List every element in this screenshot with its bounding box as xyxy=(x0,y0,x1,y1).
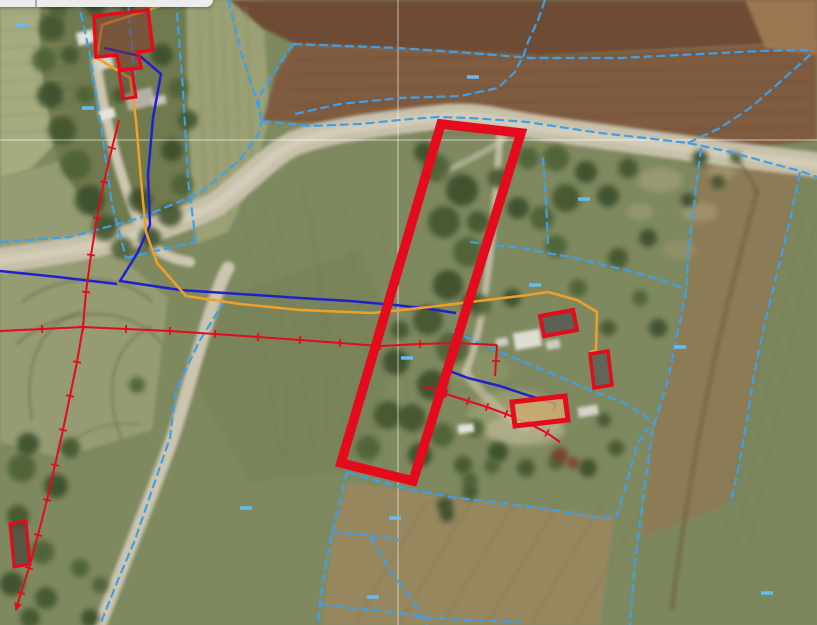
tree-canopy xyxy=(608,248,628,268)
red-bush xyxy=(552,447,568,463)
tree-canopy xyxy=(600,320,616,336)
map-canvas[interactable] xyxy=(0,0,817,625)
aerial-ground-patch xyxy=(626,204,654,220)
building-outline[interactable] xyxy=(540,310,577,336)
tree-canopy xyxy=(618,158,638,178)
tree-canopy xyxy=(398,404,426,432)
tree-canopy xyxy=(552,184,580,212)
tree-canopy xyxy=(32,48,56,72)
building-outline[interactable] xyxy=(512,396,568,426)
toolbar-fragment[interactable] xyxy=(0,0,213,7)
aerial-ground-patch xyxy=(638,168,682,192)
tree-canopy xyxy=(484,458,500,474)
building-outline[interactable] xyxy=(119,69,136,99)
tree-canopy xyxy=(61,150,91,180)
tree-canopy xyxy=(711,175,725,189)
tree-canopy xyxy=(8,454,36,482)
tree-canopy xyxy=(129,377,145,393)
tree-canopy xyxy=(92,577,108,593)
tree-canopy xyxy=(383,349,409,375)
tree-canopy xyxy=(35,587,57,609)
building-outline[interactable] xyxy=(590,351,612,388)
tree-canopy xyxy=(649,319,667,337)
tree-canopy xyxy=(454,456,472,474)
tree-canopy xyxy=(507,197,529,219)
tree-canopy xyxy=(61,46,79,64)
tree-canopy xyxy=(608,440,624,456)
tree-canopy xyxy=(440,508,454,522)
tree-canopy xyxy=(161,139,183,161)
tree-canopy xyxy=(446,174,478,206)
tree-canopy xyxy=(579,459,597,477)
building-outline[interactable] xyxy=(10,521,30,567)
tree-canopy xyxy=(467,211,489,233)
tree-canopy xyxy=(632,290,648,306)
tree-canopy xyxy=(111,237,133,259)
tree-canopy xyxy=(428,206,460,238)
tree-canopy xyxy=(17,433,39,455)
tree-canopy xyxy=(39,15,65,41)
tree-canopy xyxy=(71,559,89,577)
tree-canopy xyxy=(178,110,198,130)
tree-canopy xyxy=(597,413,611,427)
tree-canopy xyxy=(391,321,409,339)
toolbar-divider xyxy=(35,0,37,7)
tree-canopy xyxy=(517,459,535,477)
tree-canopy xyxy=(356,436,380,460)
aerial-ground-patch xyxy=(664,241,696,259)
red-bush xyxy=(567,457,579,469)
tree-canopy xyxy=(681,193,695,207)
tree-canopy xyxy=(433,270,463,300)
tree-canopy xyxy=(168,78,188,98)
map-viewport[interactable] xyxy=(0,0,817,625)
tree-canopy xyxy=(60,438,80,458)
tree-canopy xyxy=(597,185,619,207)
tree-canopy xyxy=(37,82,63,108)
tree-canopy xyxy=(76,86,94,104)
tree-canopy xyxy=(530,206,554,230)
tree-canopy xyxy=(639,229,657,247)
tree-canopy xyxy=(569,279,587,297)
tree-canopy xyxy=(575,161,597,183)
tree-canopy xyxy=(543,145,569,171)
